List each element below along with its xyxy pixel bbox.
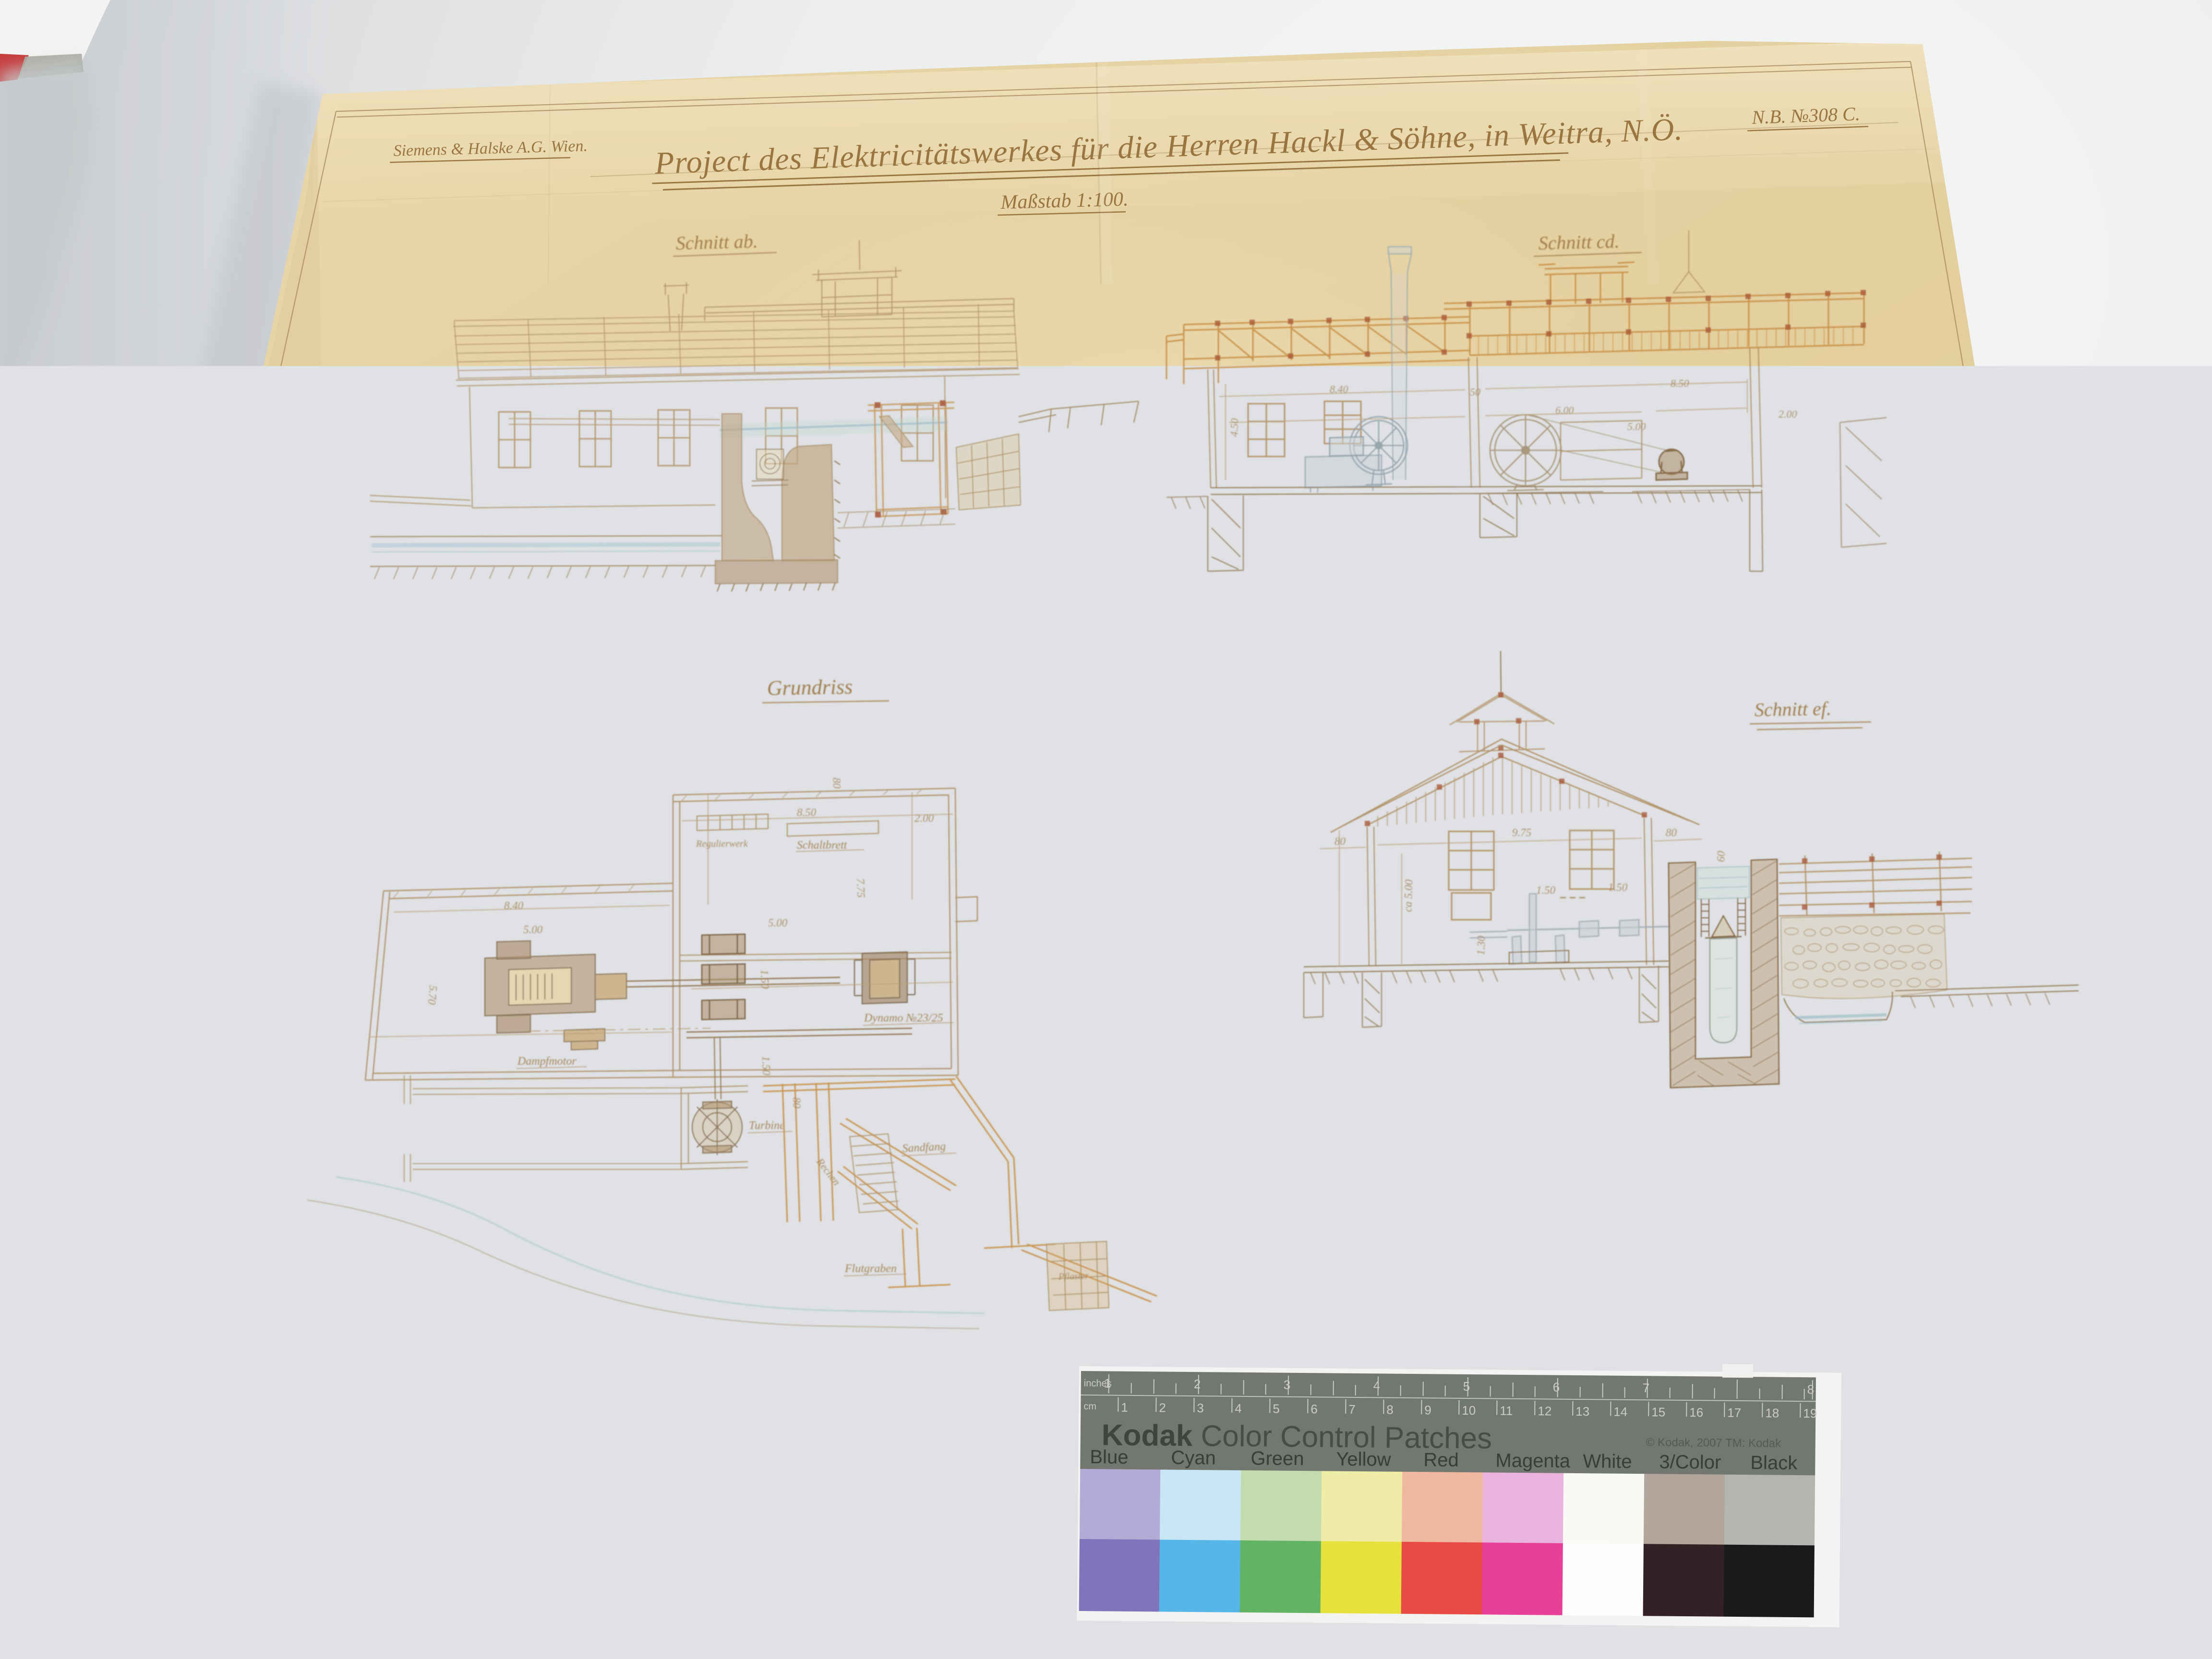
svg-text:2: 2 <box>1159 1400 1166 1415</box>
svg-text:8.50: 8.50 <box>797 806 817 818</box>
svg-text:Yellow: Yellow <box>1336 1449 1391 1470</box>
svg-text:5.00: 5.00 <box>1627 421 1646 433</box>
svg-text:Dynamo №23/25: Dynamo №23/25 <box>864 1012 943 1024</box>
svg-text:2.00: 2.00 <box>914 812 934 824</box>
svg-text:3: 3 <box>1284 1378 1291 1392</box>
svg-text:2: 2 <box>1194 1377 1201 1391</box>
svg-text:80: 80 <box>830 777 843 789</box>
svg-text:Red: Red <box>1423 1449 1459 1471</box>
svg-text:2.00: 2.00 <box>1779 408 1797 420</box>
svg-text:8: 8 <box>1386 1403 1394 1417</box>
svg-text:cm: cm <box>1083 1401 1096 1412</box>
svg-text:6.00: 6.00 <box>1555 404 1574 416</box>
svg-text:Schnitt ab.: Schnitt ab. <box>675 230 758 254</box>
svg-text:7: 7 <box>1348 1402 1356 1417</box>
svg-text:Sandfang: Sandfang <box>902 1140 946 1155</box>
svg-text:1.50: 1.50 <box>760 1056 772 1076</box>
svg-text:7: 7 <box>1643 1381 1650 1395</box>
svg-text:Grundriss: Grundriss <box>767 675 853 700</box>
svg-text:Cyan: Cyan <box>1171 1447 1216 1469</box>
svg-text:50: 50 <box>1470 386 1480 398</box>
svg-text:6: 6 <box>666 1429 707 1510</box>
svg-text:19: 19 <box>1803 1406 1817 1420</box>
svg-text:8.40: 8.40 <box>1330 383 1348 395</box>
svg-text:17: 17 <box>1727 1406 1741 1420</box>
svg-text:1: 1 <box>1104 1376 1111 1390</box>
svg-text:Regulierwerk: Regulierwerk <box>696 839 748 849</box>
svg-text:Green: Green <box>1250 1448 1304 1469</box>
svg-text:1: 1 <box>1121 1400 1128 1415</box>
svg-text:White: White <box>1583 1451 1632 1472</box>
svg-text:14: 14 <box>1613 1405 1627 1419</box>
svg-text:80: 80 <box>1334 835 1346 847</box>
svg-text:5.00: 5.00 <box>768 917 788 929</box>
svg-text:4: 4 <box>1373 1378 1381 1393</box>
svg-text:11: 11 <box>1500 1404 1513 1418</box>
svg-text:Black: Black <box>1750 1452 1798 1474</box>
svg-text:Wien, 11. Juni 1901.: Wien, 11. Juni 1901. <box>1528 1181 1717 1211</box>
svg-text:80: 80 <box>1666 827 1677 839</box>
svg-text:Schaltbrett: Schaltbrett <box>797 839 848 852</box>
svg-text:N.B. №308 C.: N.B. №308 C. <box>1751 103 1861 128</box>
svg-text:Turbine: Turbine <box>749 1119 785 1132</box>
svg-text:4: 4 <box>774 1428 816 1509</box>
svg-text:LK 2508/: LK 2508/ <box>397 1430 643 1514</box>
svg-text:13: 13 <box>1575 1404 1589 1419</box>
svg-text:9.75: 9.75 <box>1512 827 1531 839</box>
svg-text:18: 18 <box>1765 1406 1779 1420</box>
svg-text:5.70: 5.70 <box>425 985 439 1006</box>
svg-text:3/Color: 3/Color <box>1659 1452 1721 1473</box>
svg-text:Schnitt ef.: Schnitt ef. <box>1754 697 1831 721</box>
svg-text:Droucek: Droucek <box>1587 1220 1661 1246</box>
svg-text:Blue: Blue <box>1090 1446 1128 1468</box>
svg-text:3: 3 <box>1197 1401 1204 1415</box>
svg-text:5.00: 5.00 <box>523 924 543 936</box>
svg-text:6: 6 <box>1310 1402 1318 1416</box>
svg-text:2: 2 <box>720 1429 761 1510</box>
svg-text:4: 4 <box>1235 1401 1242 1416</box>
svg-text:5: 5 <box>1273 1401 1280 1416</box>
svg-text:8: 8 <box>1807 1382 1815 1396</box>
svg-text:5: 5 <box>1463 1379 1470 1394</box>
svg-text:60: 60 <box>1715 851 1727 862</box>
svg-text:9: 9 <box>1424 1403 1431 1417</box>
svg-text:7.75: 7.75 <box>854 878 867 898</box>
svg-text:10: 10 <box>1462 1403 1476 1418</box>
svg-text:Schnitt cd.: Schnitt cd. <box>1538 230 1620 254</box>
svg-text:Dampfmotor: Dampfmotor <box>517 1055 577 1068</box>
svg-text:1.30: 1.30 <box>1475 936 1487 956</box>
svg-text:80: 80 <box>791 1097 803 1108</box>
svg-text:15: 15 <box>1651 1405 1665 1419</box>
svg-text:4.50: 4.50 <box>1228 418 1240 437</box>
svg-text:1.50: 1.50 <box>758 969 771 989</box>
svg-text:16: 16 <box>1689 1405 1703 1419</box>
svg-text:Pflaster: Pflaster <box>1058 1271 1089 1282</box>
svg-text:8.50: 8.50 <box>1671 377 1689 389</box>
svg-text:12: 12 <box>1538 1404 1551 1418</box>
svg-text:Magenta: Magenta <box>1495 1450 1571 1472</box>
svg-text:© Kodak, 2007 TM: Kodak: © Kodak, 2007 TM: Kodak <box>1646 1436 1782 1450</box>
svg-text:6: 6 <box>1553 1380 1560 1395</box>
